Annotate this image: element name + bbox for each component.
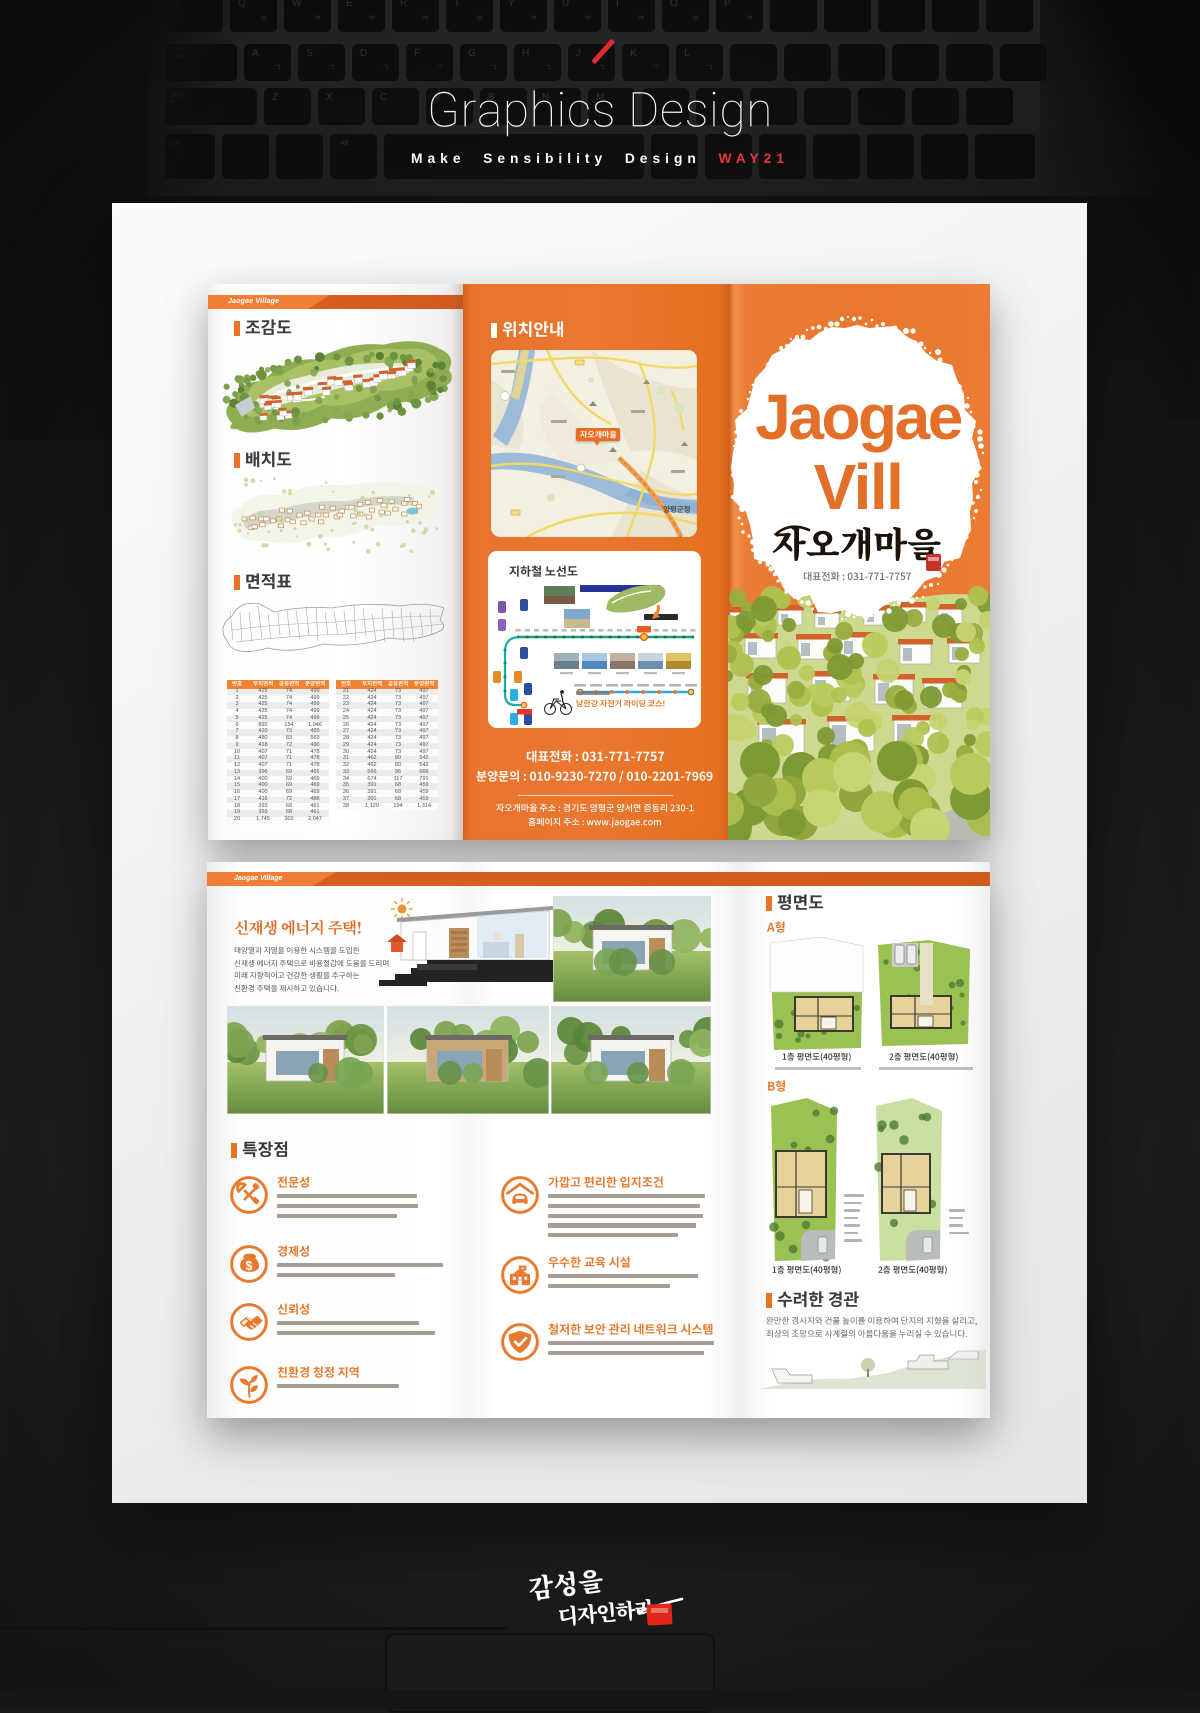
svg-text:$: $: [246, 1259, 253, 1273]
